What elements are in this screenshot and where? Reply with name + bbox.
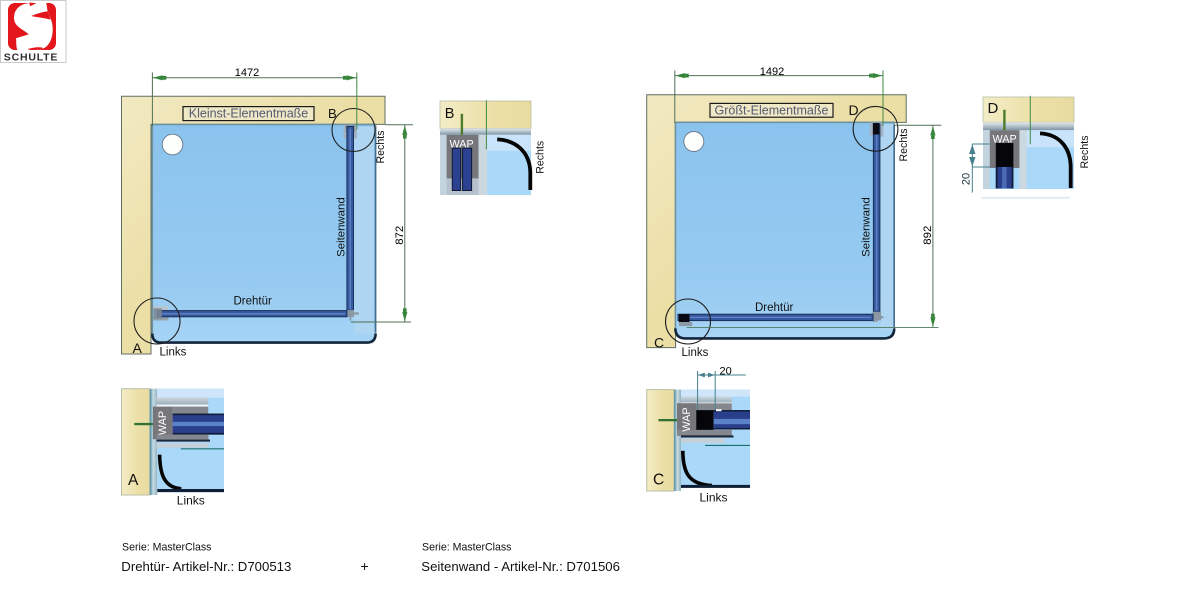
svg-text:872: 872 — [394, 226, 406, 245]
svg-text:Rechts: Rechts — [535, 141, 547, 174]
svg-text:D: D — [849, 102, 859, 118]
svg-text:Seitenwand: Seitenwand — [335, 197, 347, 257]
svg-text:Links: Links — [177, 494, 205, 508]
svg-text:C: C — [654, 335, 664, 351]
svg-text:Rechts: Rechts — [375, 131, 387, 164]
svg-text:20: 20 — [961, 173, 973, 185]
svg-text:Serie: MasterClass: Serie: MasterClass — [122, 542, 211, 554]
svg-text:A: A — [133, 340, 143, 356]
svg-text:WAP: WAP — [681, 407, 693, 431]
svg-text:892: 892 — [922, 226, 934, 245]
svg-text:Rechts: Rechts — [1079, 136, 1091, 169]
svg-text:Rechts: Rechts — [898, 129, 910, 162]
svg-text:Links: Links — [700, 491, 728, 505]
svg-text:D: D — [988, 100, 999, 117]
svg-text:Seitenwand: Seitenwand — [861, 197, 873, 257]
svg-text:A: A — [128, 472, 139, 489]
svg-text:Drehtür: Drehtür — [234, 296, 273, 308]
svg-text:B: B — [328, 106, 337, 121]
svg-text:Links: Links — [682, 347, 709, 359]
svg-text:SCHULTE: SCHULTE — [4, 52, 58, 64]
svg-text:B: B — [445, 106, 455, 122]
svg-text:Größt-Elementmaße: Größt-Elementmaße — [715, 103, 829, 117]
svg-text:C: C — [653, 471, 664, 488]
svg-text:+: + — [361, 558, 369, 574]
svg-text:1472: 1472 — [235, 67, 259, 79]
svg-text:Kleinst-Elementmaße: Kleinst-Elementmaße — [189, 107, 309, 121]
svg-text:Links: Links — [160, 347, 187, 359]
svg-text:Drehtür- Artikel-Nr.: D700513: Drehtür- Artikel-Nr.: D700513 — [121, 559, 291, 574]
svg-text:Drehtür: Drehtür — [755, 302, 794, 314]
svg-text:20: 20 — [720, 366, 732, 378]
svg-text:WAP: WAP — [157, 411, 169, 435]
svg-text:1492: 1492 — [760, 66, 784, 78]
svg-text:Serie: MasterClass: Serie: MasterClass — [422, 542, 511, 554]
svg-text:Seitenwand - Artikel-Nr.: D701: Seitenwand - Artikel-Nr.: D701506 — [421, 559, 620, 574]
